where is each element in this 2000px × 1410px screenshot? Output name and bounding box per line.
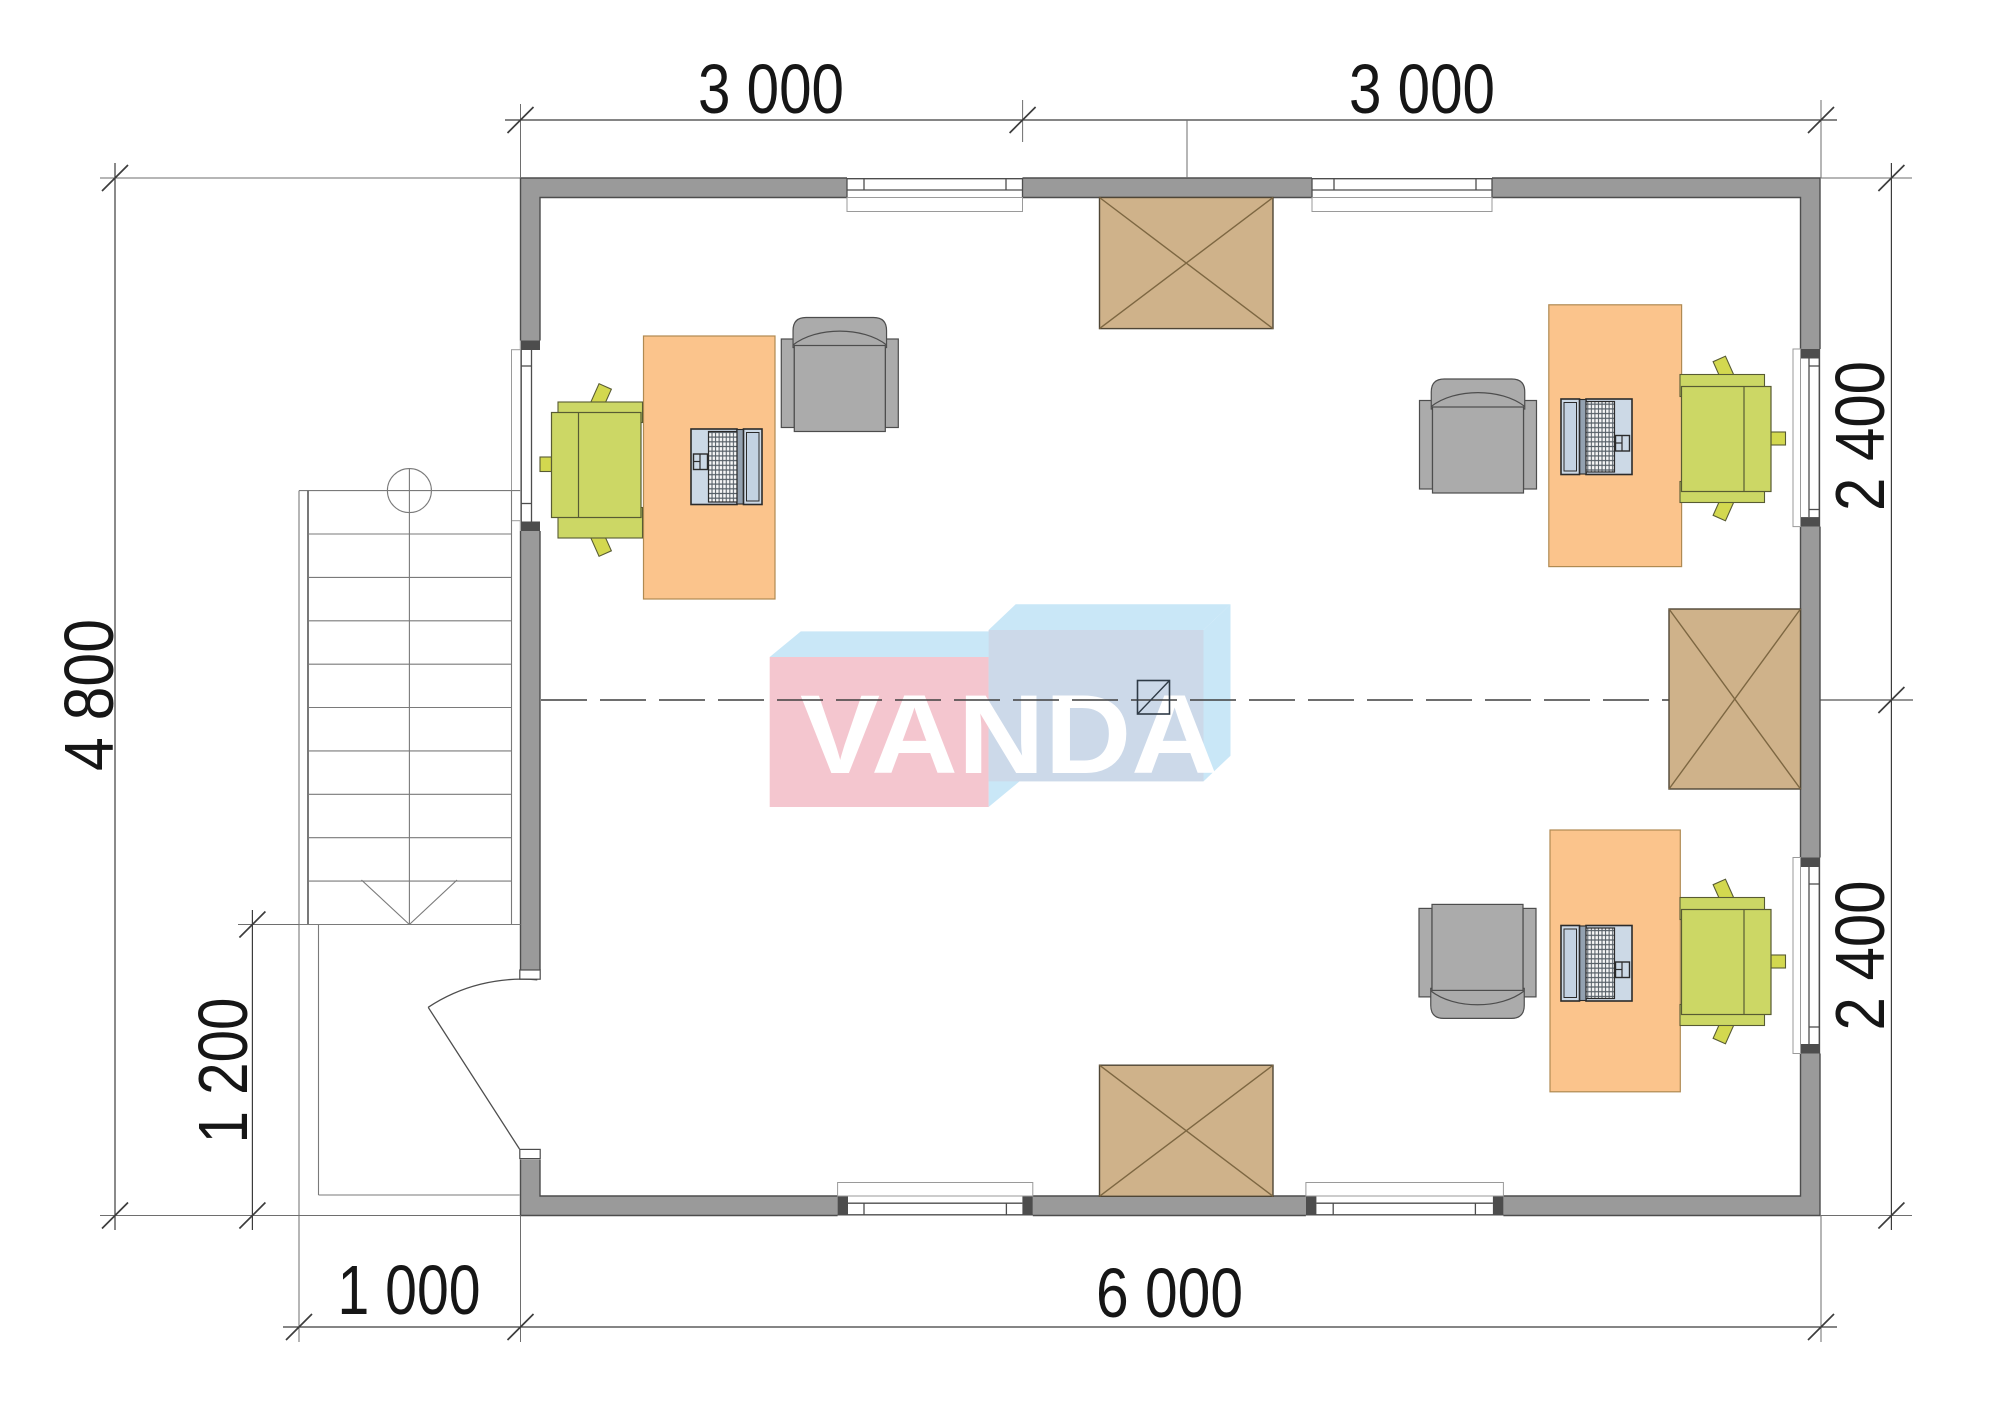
svg-text:6 000: 6 000 — [1096, 1254, 1243, 1332]
svg-text:3 000: 3 000 — [1349, 50, 1495, 128]
svg-text:1 200: 1 200 — [184, 998, 262, 1144]
svg-text:2 400: 2 400 — [1821, 881, 1899, 1031]
svg-text:4 800: 4 800 — [50, 619, 128, 771]
svg-text:3 000: 3 000 — [698, 50, 844, 128]
svg-text:2 400: 2 400 — [1821, 361, 1899, 511]
svg-text:1 000: 1 000 — [338, 1251, 481, 1329]
